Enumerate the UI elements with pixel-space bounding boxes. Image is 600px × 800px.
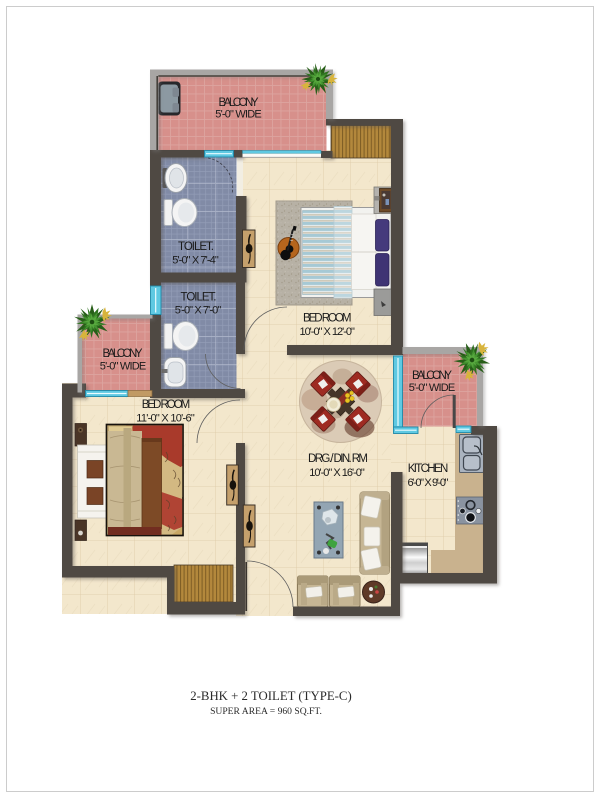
svg-text:11'-0" X 10'-6": 11'-0" X 10'-6" bbox=[136, 413, 195, 425]
svg-text:BALCONY: BALCONY bbox=[412, 370, 452, 382]
svg-text:BED ROOM: BED ROOM bbox=[303, 313, 352, 325]
svg-text:SUPER AREA = 960 SQ.FT.: SUPER AREA = 960 SQ.FT. bbox=[210, 706, 322, 717]
svg-text:TOILET.: TOILET. bbox=[178, 241, 214, 253]
svg-text:2-BHK + 2 TOILET (TYPE-C): 2-BHK + 2 TOILET (TYPE-C) bbox=[190, 689, 351, 703]
svg-text:10'-0" X 12'-0": 10'-0" X 12'-0" bbox=[299, 326, 355, 338]
svg-text:5'-0" WIDE: 5'-0" WIDE bbox=[215, 109, 262, 121]
svg-text:10'-0" X 16'-0": 10'-0" X 16'-0" bbox=[309, 467, 365, 479]
svg-text:BALCONY: BALCONY bbox=[219, 97, 259, 109]
svg-text:5'-0" WIDE: 5'-0" WIDE bbox=[100, 361, 147, 373]
svg-text:BALCONY: BALCONY bbox=[103, 348, 143, 360]
svg-text:BED ROOM: BED ROOM bbox=[142, 399, 191, 411]
svg-text:5'-0" X 7'-0": 5'-0" X 7'-0" bbox=[175, 305, 222, 317]
svg-text:TOILET.: TOILET. bbox=[181, 292, 217, 304]
svg-text:5'-0" X 7'-4": 5'-0" X 7'-4" bbox=[172, 255, 219, 267]
svg-text:KITCHEN: KITCHEN bbox=[408, 463, 449, 475]
svg-text:DRG./ DIN. RM: DRG./ DIN. RM bbox=[308, 453, 368, 465]
svg-text:5'-0" WIDE: 5'-0" WIDE bbox=[409, 382, 456, 394]
svg-text:6'-0" X 9'-0": 6'-0" X 9'-0" bbox=[408, 477, 449, 489]
